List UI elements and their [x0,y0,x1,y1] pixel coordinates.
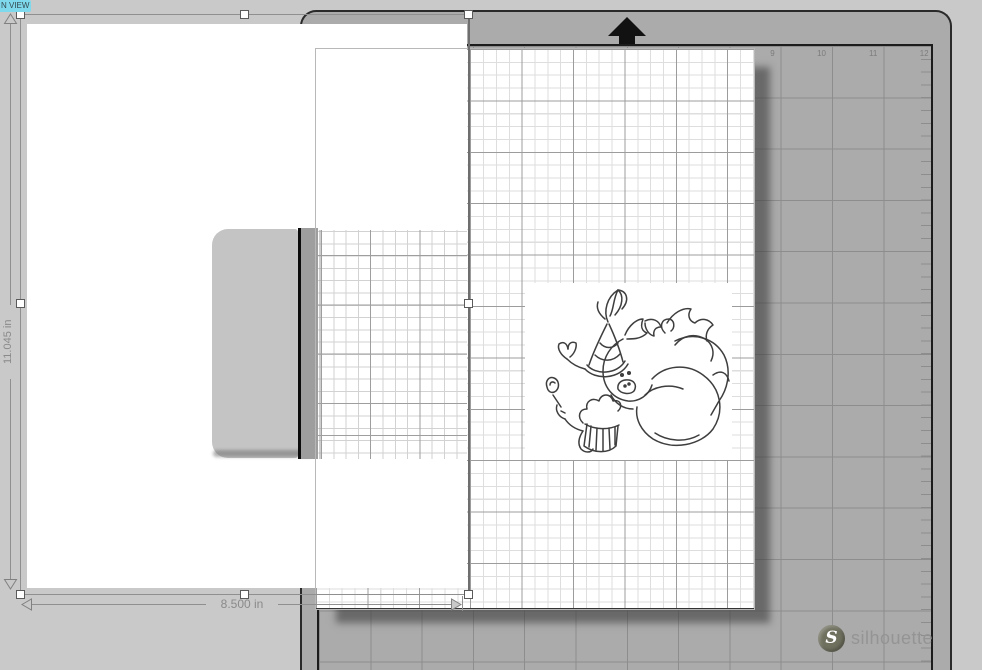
arrow-head [608,17,646,36]
silhouette-s-logo-icon: S [818,625,845,652]
width-dimension-line-left [30,604,208,605]
selection-handle-middle-right[interactable] [464,299,473,308]
width-dimension-end-tick [462,596,463,611]
dimension-arrow-down-icon [3,578,18,590]
selection-handle-bottom-right[interactable] [464,590,473,599]
placed-image-pig-lineart[interactable] [525,283,732,460]
mat-ruler-number-11: 11 [861,49,877,58]
mat-ruler-number-9: 9 [759,49,775,58]
selection-handle-bottom-middle[interactable] [240,590,249,599]
notepad-binding-strip [298,228,318,459]
silhouette-studio-canvas: { "view_badge": { "label": "N VIEW" }, "… [0,0,982,663]
height-dimension-line [10,18,11,586]
dimension-arrow-left-icon [21,598,33,613]
design-view-badge[interactable]: N VIEW [0,0,31,12]
width-dimension-label: 8.500 in [206,597,278,611]
notepad-backboard [212,229,298,458]
notepad-graph-paper [318,230,467,459]
selection-handle-bottom-left[interactable] [16,590,25,599]
selection-handle-top-right[interactable] [464,10,473,19]
pig-drawing [525,283,732,460]
mat-ruler-number-10: 10 [810,49,826,58]
dimension-arrow-right-icon [450,598,462,613]
silhouette-brand-text: silhouette [851,628,933,649]
width-dimension-line-right [278,604,456,605]
scanned-notepad-image[interactable] [27,24,467,588]
selection-handle-middle-left[interactable] [16,299,25,308]
height-dimension-label: 11.045 in [1,305,16,379]
mat-edge-tick-marks [921,46,931,670]
silhouette-branding: S silhouette [818,625,938,655]
selection-handle-top-middle[interactable] [240,10,249,19]
